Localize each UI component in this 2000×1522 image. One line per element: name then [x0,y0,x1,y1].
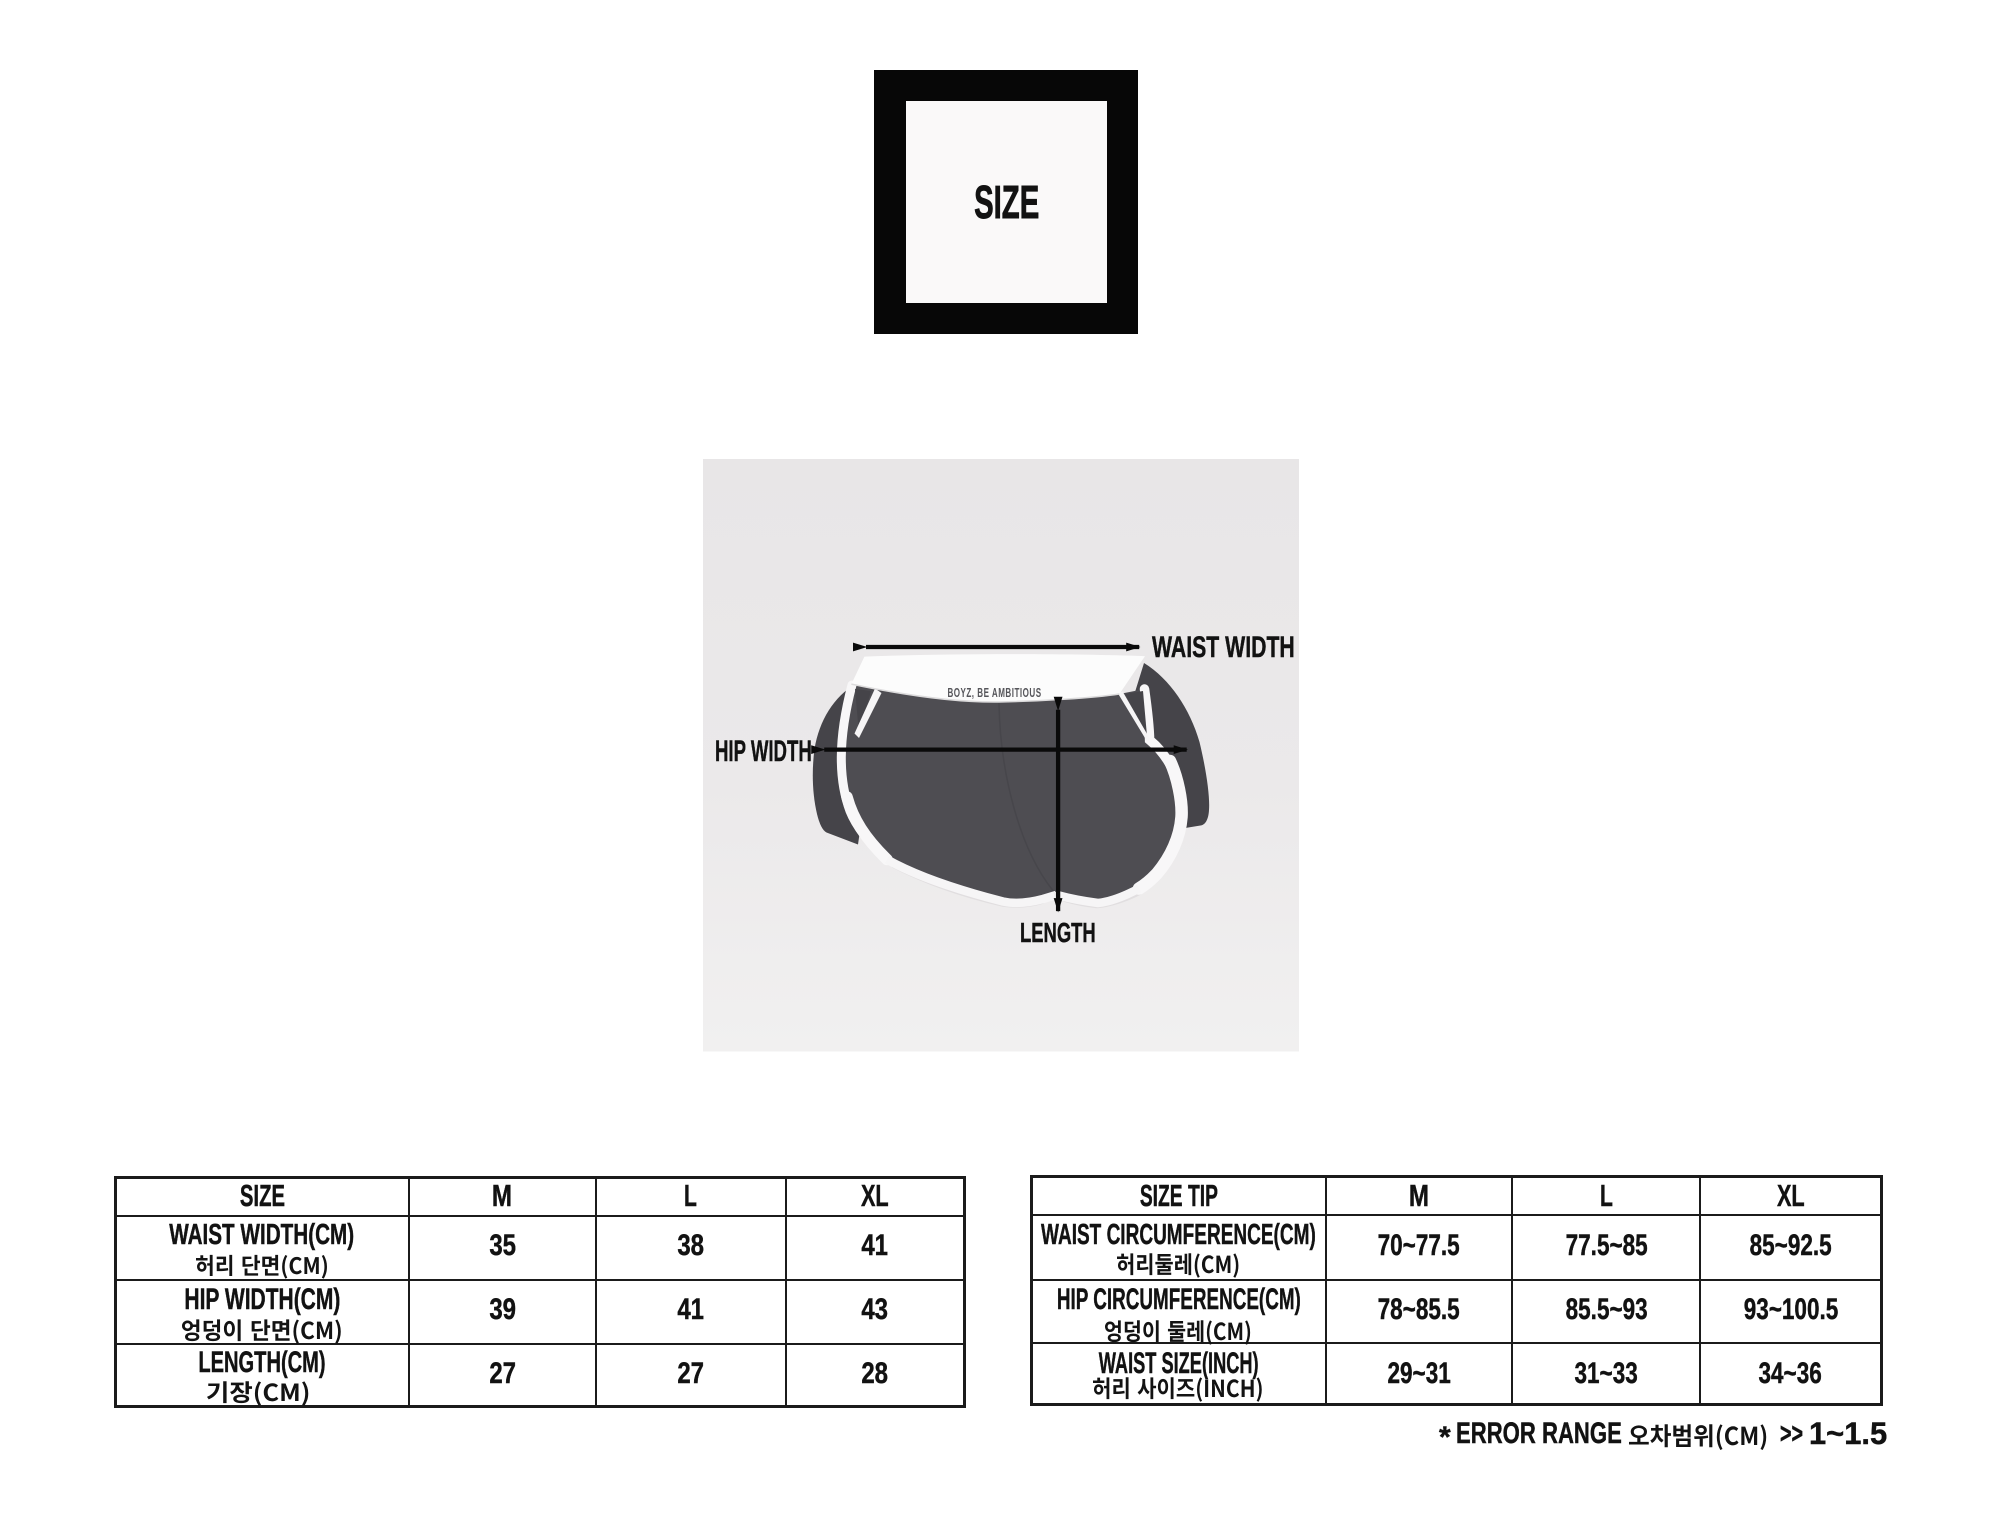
svg-text:BOYZ, BE AMBITIOUS: BOYZ, BE AMBITIOUS [948,686,1042,700]
